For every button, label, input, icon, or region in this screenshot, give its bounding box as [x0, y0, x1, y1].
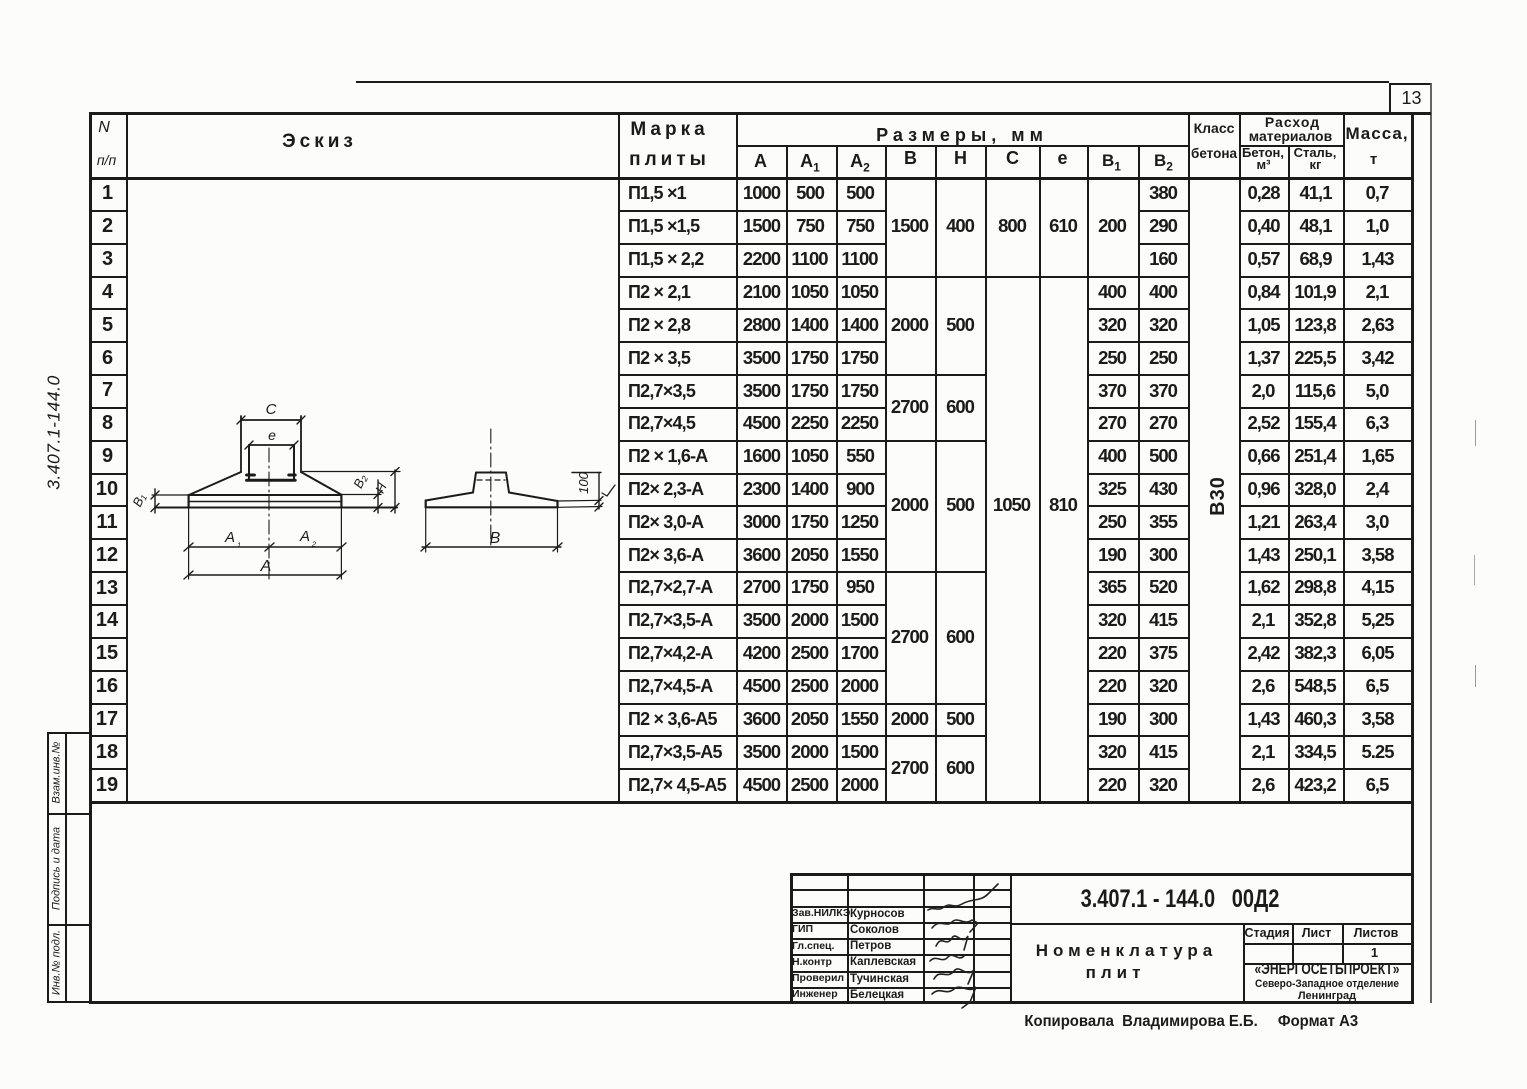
svg-text:А: А: [224, 529, 235, 546]
svg-text:В: В: [490, 530, 501, 547]
svg-text:В₁: В₁: [129, 491, 148, 509]
svg-text:Н: Н: [372, 480, 390, 495]
svg-text:В₂: В₂: [350, 472, 369, 491]
svg-text:₁: ₁: [236, 537, 241, 549]
svg-text:С: С: [266, 401, 277, 418]
svg-text:100: 100: [576, 471, 591, 493]
svg-text:А: А: [260, 558, 272, 575]
svg-text:₂: ₂: [311, 536, 317, 548]
svg-text:А: А: [299, 528, 310, 545]
svg-text:е: е: [268, 427, 276, 443]
